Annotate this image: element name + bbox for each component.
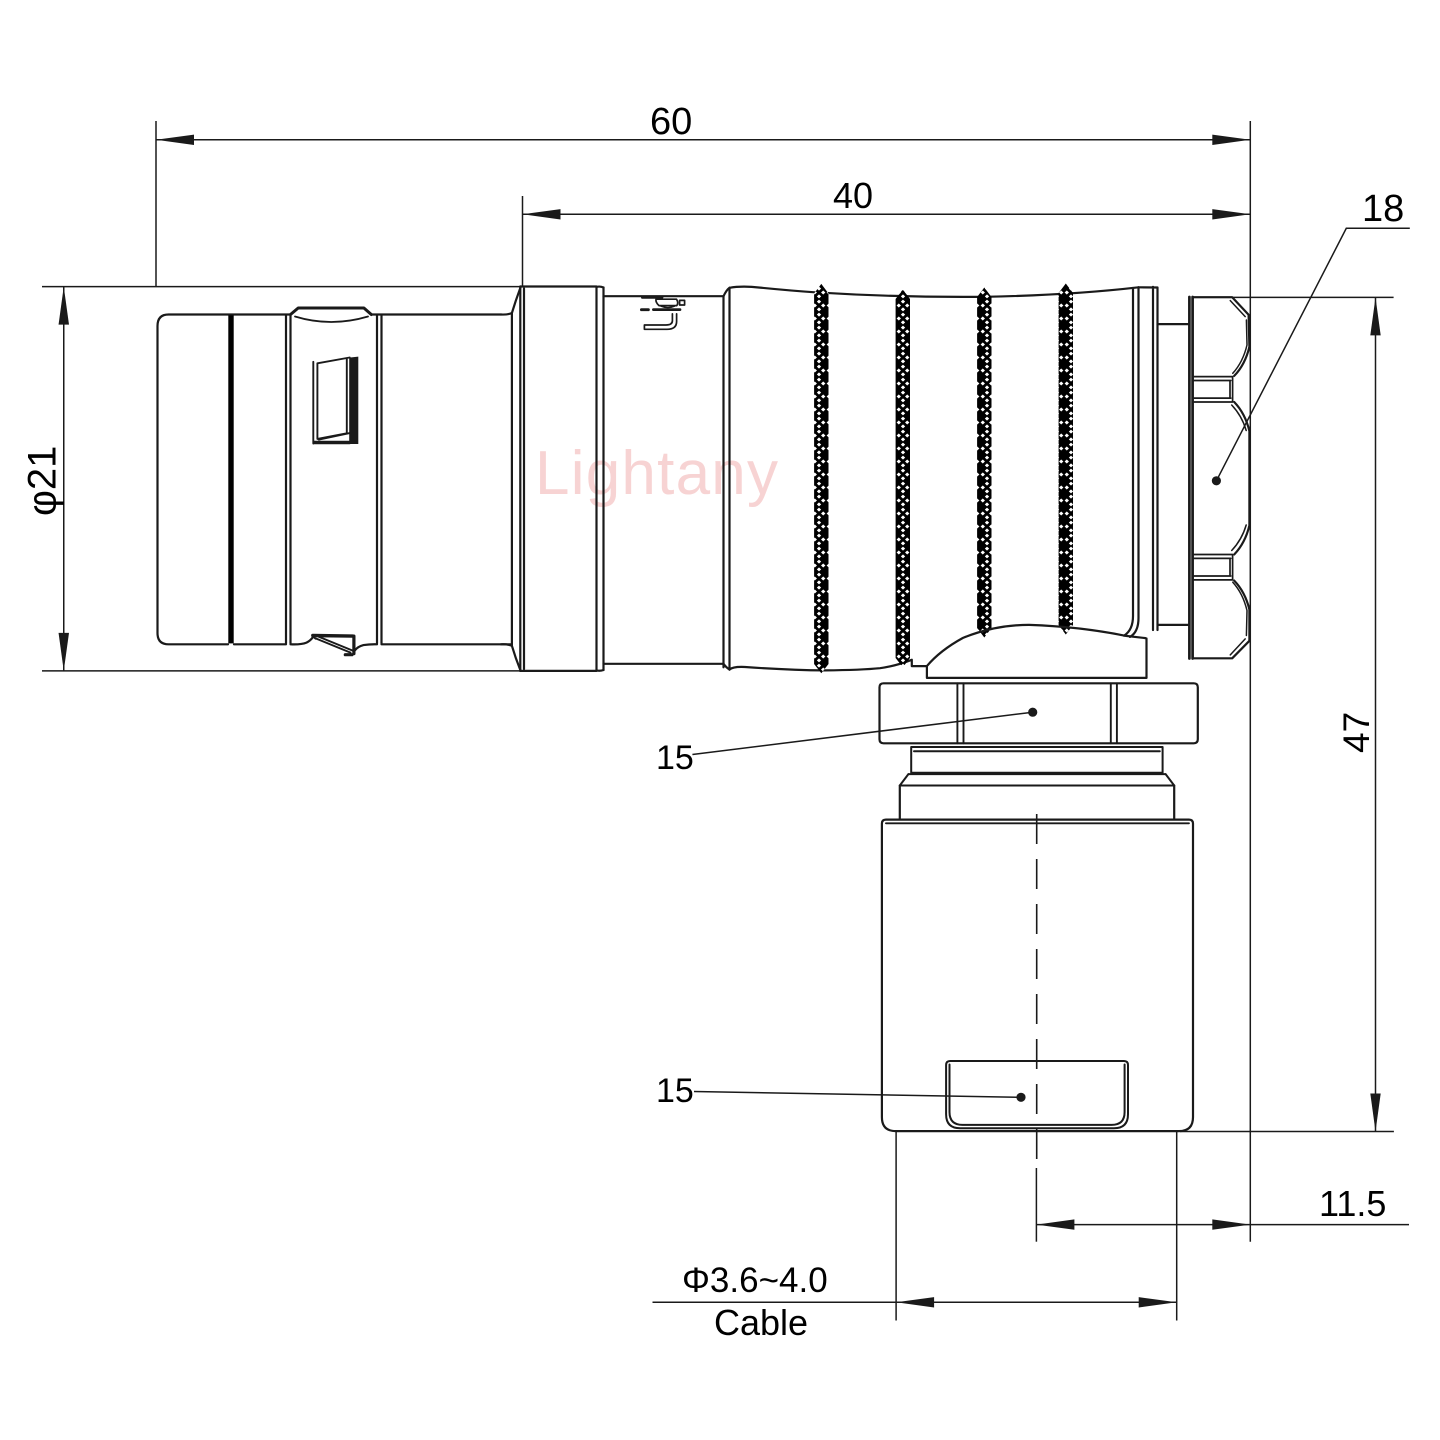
svg-text:11.5: 11.5 xyxy=(1319,1183,1386,1224)
svg-text:15: 15 xyxy=(656,739,694,777)
svg-text:Lightany: Lightany xyxy=(535,439,778,508)
svg-text:18: 18 xyxy=(1362,188,1404,230)
svg-text:60: 60 xyxy=(650,101,692,143)
svg-text:Cable: Cable xyxy=(714,1302,808,1343)
svg-text:15: 15 xyxy=(656,1072,694,1110)
svg-text:Φ3.6~4.0: Φ3.6~4.0 xyxy=(682,1261,828,1300)
svg-text:φ21: φ21 xyxy=(21,446,65,516)
svg-text:40: 40 xyxy=(833,175,873,216)
svg-text:47: 47 xyxy=(1336,712,1377,753)
